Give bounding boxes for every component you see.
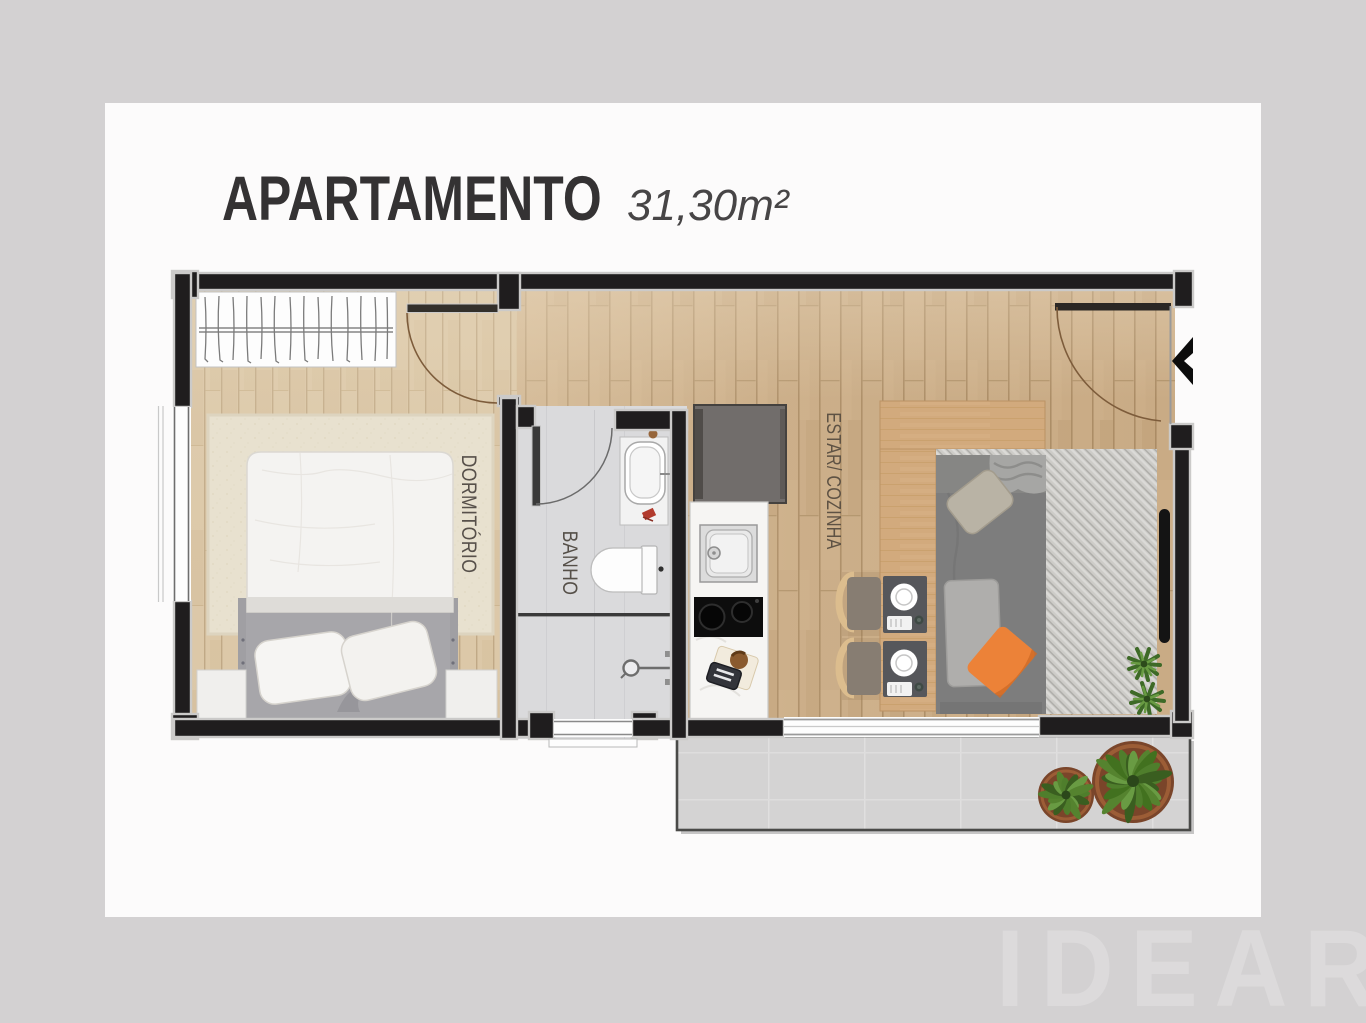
svg-text:IDEAR: IDEAR — [996, 907, 1366, 1023]
svg-text:DORMITÓRIO: DORMITÓRIO — [457, 455, 482, 574]
svg-text:31,30m²: 31,30m² — [627, 181, 790, 230]
svg-text:APARTAMENTO: APARTAMENTO — [222, 165, 602, 235]
svg-text:ESTAR/ COZINHA: ESTAR/ COZINHA — [823, 412, 846, 550]
svg-text:BANHO: BANHO — [558, 531, 582, 596]
